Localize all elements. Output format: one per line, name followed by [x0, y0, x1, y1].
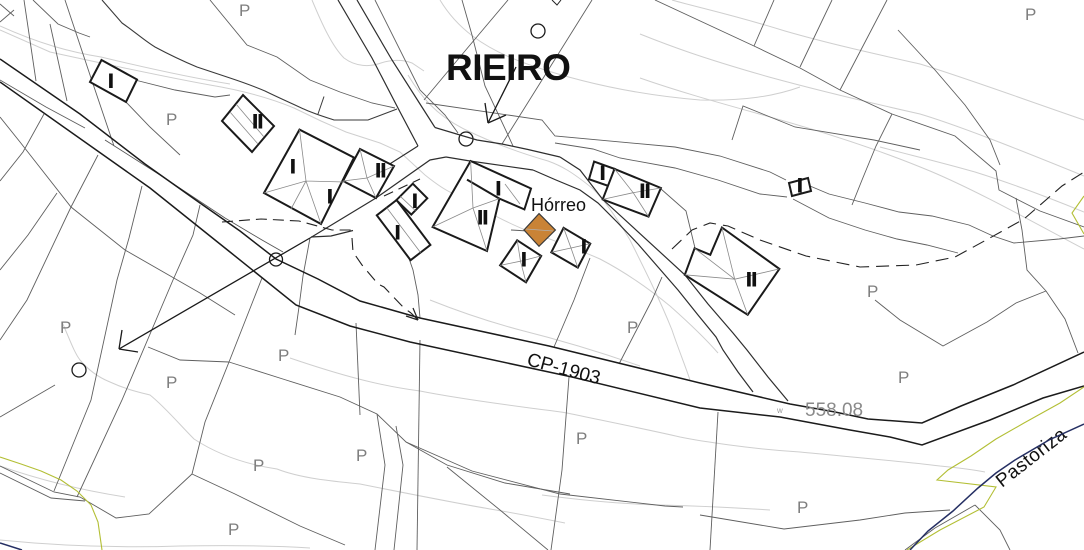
svg-text:I: I	[581, 237, 586, 258]
svg-text:I: I	[290, 157, 295, 178]
svg-text:Hórreo: Hórreo	[531, 195, 586, 215]
svg-text:I: I	[496, 179, 501, 200]
svg-text:P: P	[576, 429, 587, 448]
svg-text:II: II	[376, 161, 387, 182]
svg-text:P: P	[228, 520, 239, 539]
svg-text:P: P	[239, 1, 250, 20]
svg-text:P: P	[278, 346, 289, 365]
svg-text:P: P	[627, 318, 638, 337]
svg-text:P: P	[166, 110, 177, 129]
svg-text:P: P	[898, 368, 909, 387]
svg-text:P: P	[867, 282, 878, 301]
svg-text:I: I	[600, 164, 605, 185]
svg-text:II: II	[640, 182, 651, 203]
svg-text:I: I	[108, 71, 113, 92]
svg-text:P: P	[166, 373, 177, 392]
svg-text:RIEIRO: RIEIRO	[446, 47, 570, 88]
svg-text:w: w	[776, 406, 783, 415]
svg-text:I: I	[412, 191, 417, 212]
svg-text:II: II	[746, 270, 757, 291]
svg-text:P: P	[253, 456, 264, 475]
svg-text:I: I	[521, 250, 526, 271]
svg-text:P: P	[1025, 5, 1036, 24]
svg-text:558.08: 558.08	[805, 400, 863, 421]
svg-text:P: P	[60, 318, 71, 337]
svg-text:II: II	[478, 208, 489, 229]
svg-text:II: II	[253, 112, 264, 133]
svg-text:I: I	[327, 187, 332, 208]
svg-text:P: P	[797, 498, 808, 517]
svg-text:I: I	[395, 223, 400, 244]
svg-text:P: P	[356, 446, 367, 465]
svg-text:I: I	[797, 176, 802, 197]
